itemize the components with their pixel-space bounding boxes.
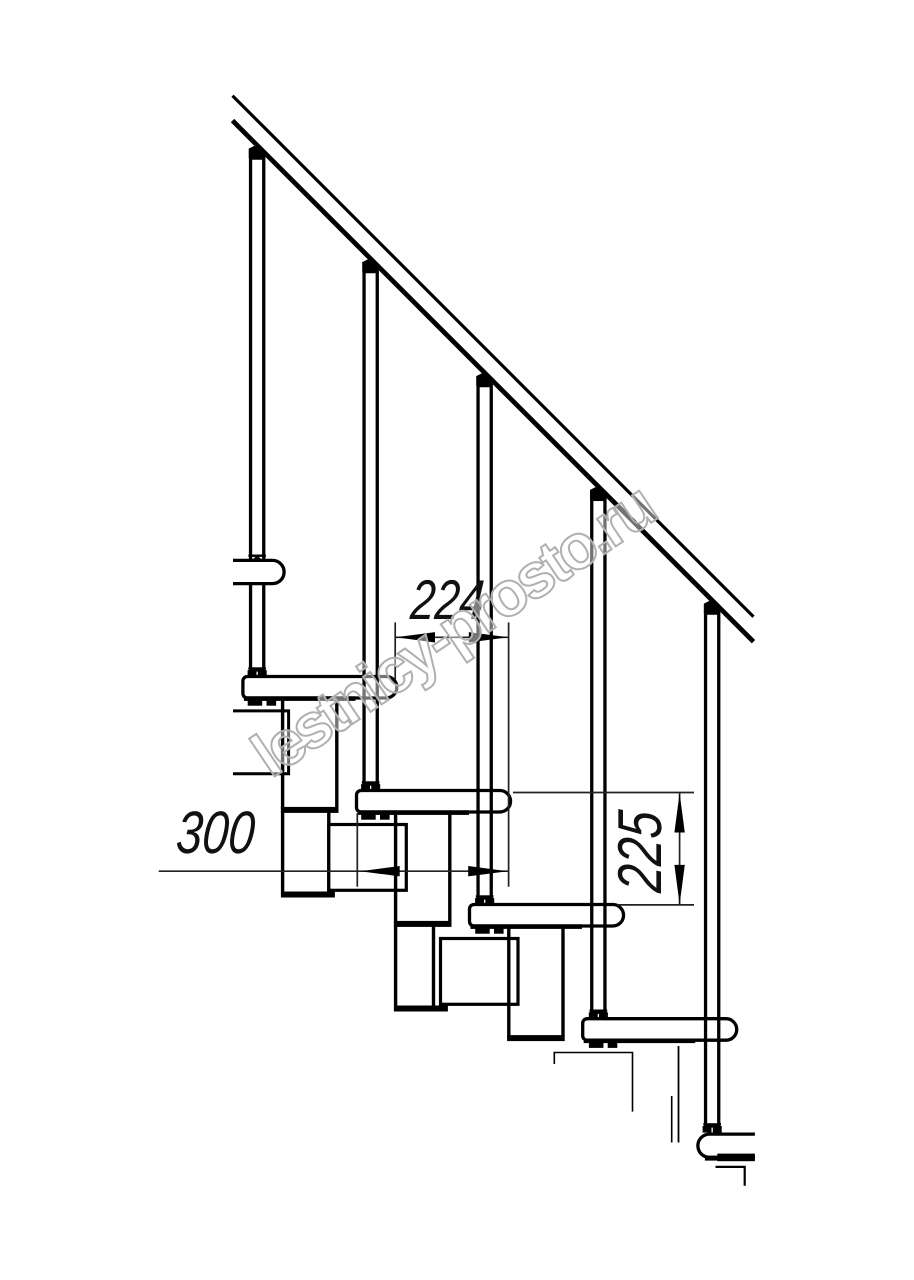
svg-text:300: 300 [174,800,258,867]
svg-text:225: 225 [605,807,674,895]
